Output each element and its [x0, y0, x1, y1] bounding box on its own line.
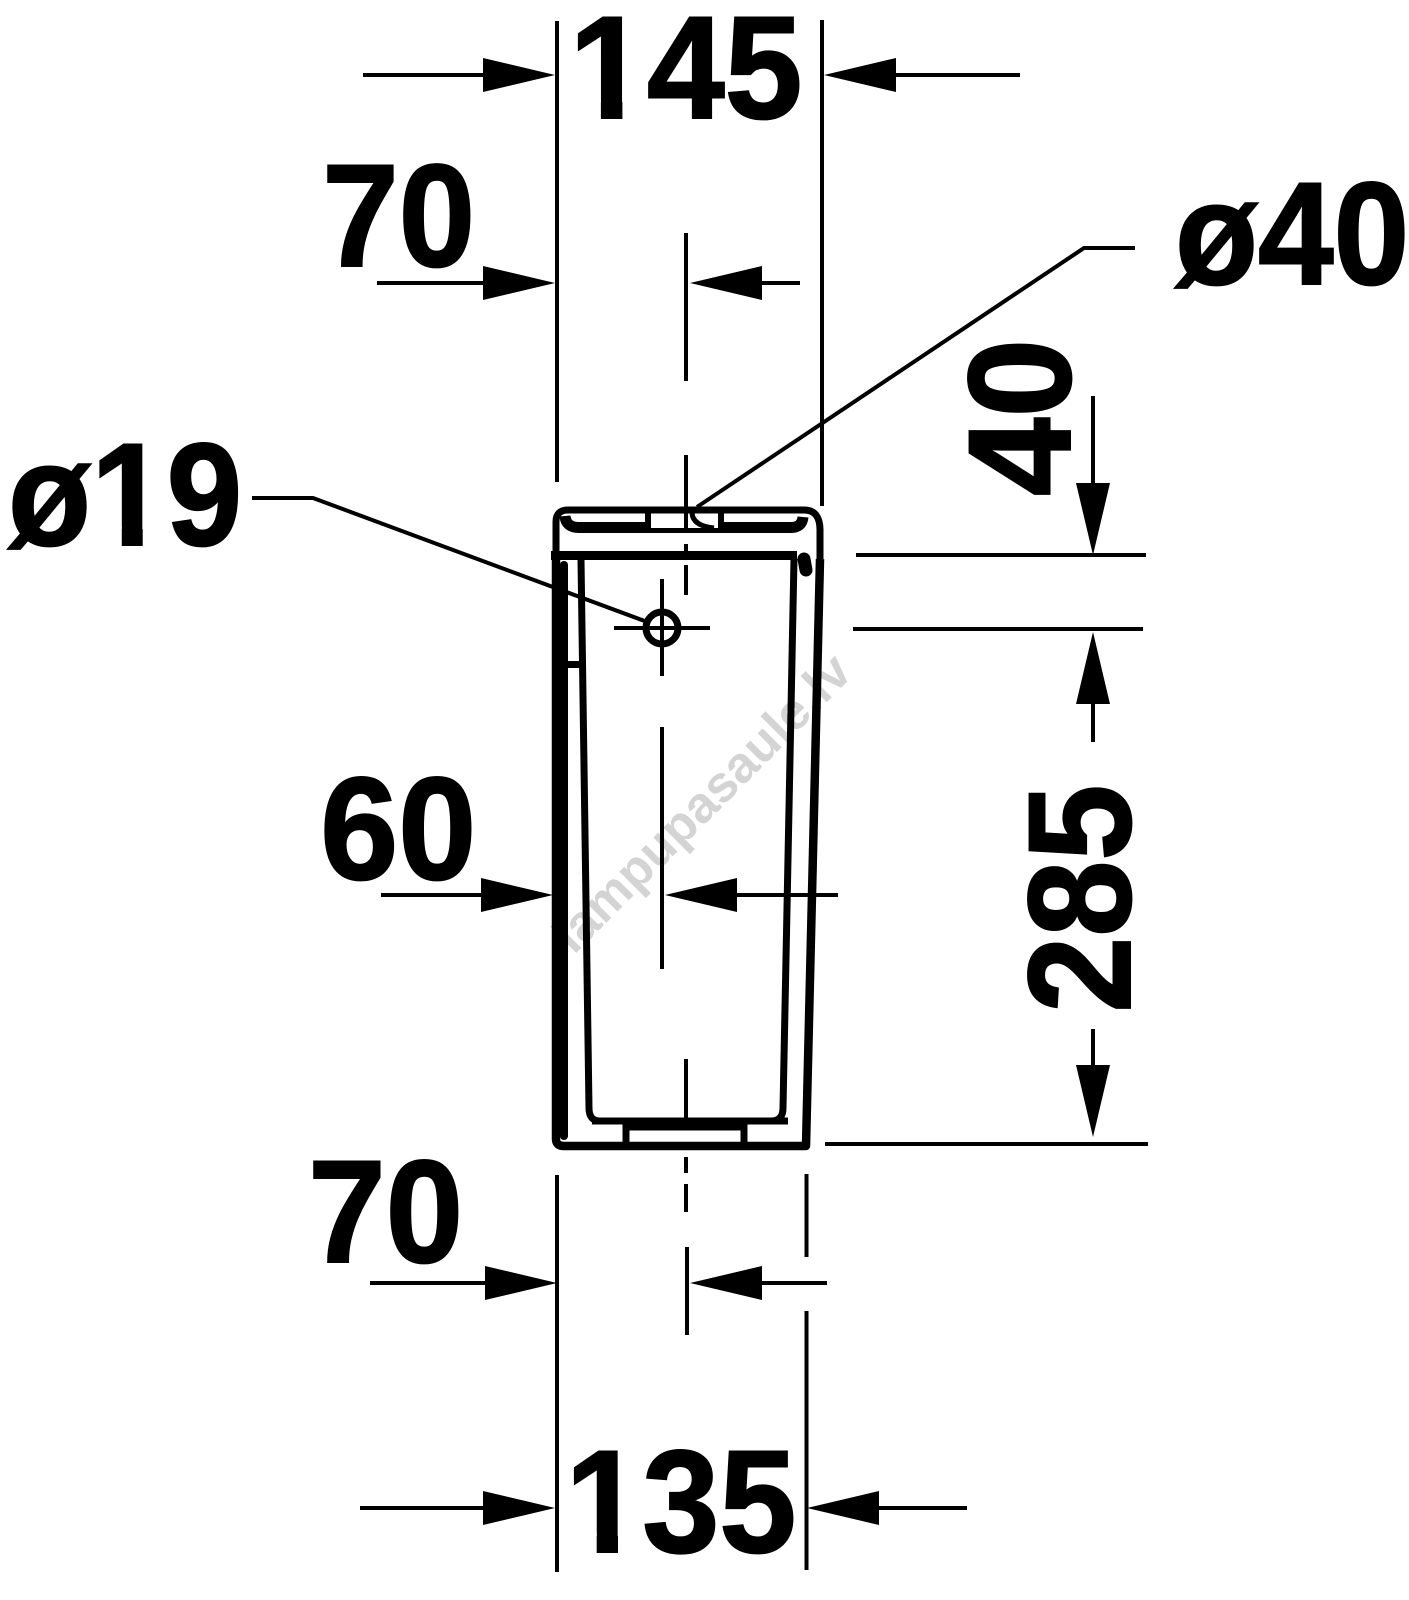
svg-text:ø19: ø19: [8, 413, 242, 577]
svg-text:135: 135: [565, 1421, 796, 1584]
svg-text:70: 70: [308, 1131, 463, 1294]
svg-text:285: 285: [998, 784, 1161, 1012]
svg-text:40: 40: [939, 339, 1102, 496]
svg-text:70: 70: [322, 135, 475, 298]
svg-text:60: 60: [320, 747, 476, 910]
svg-text:ø40: ø40: [1175, 152, 1409, 316]
svg-text:145: 145: [569, 0, 802, 150]
